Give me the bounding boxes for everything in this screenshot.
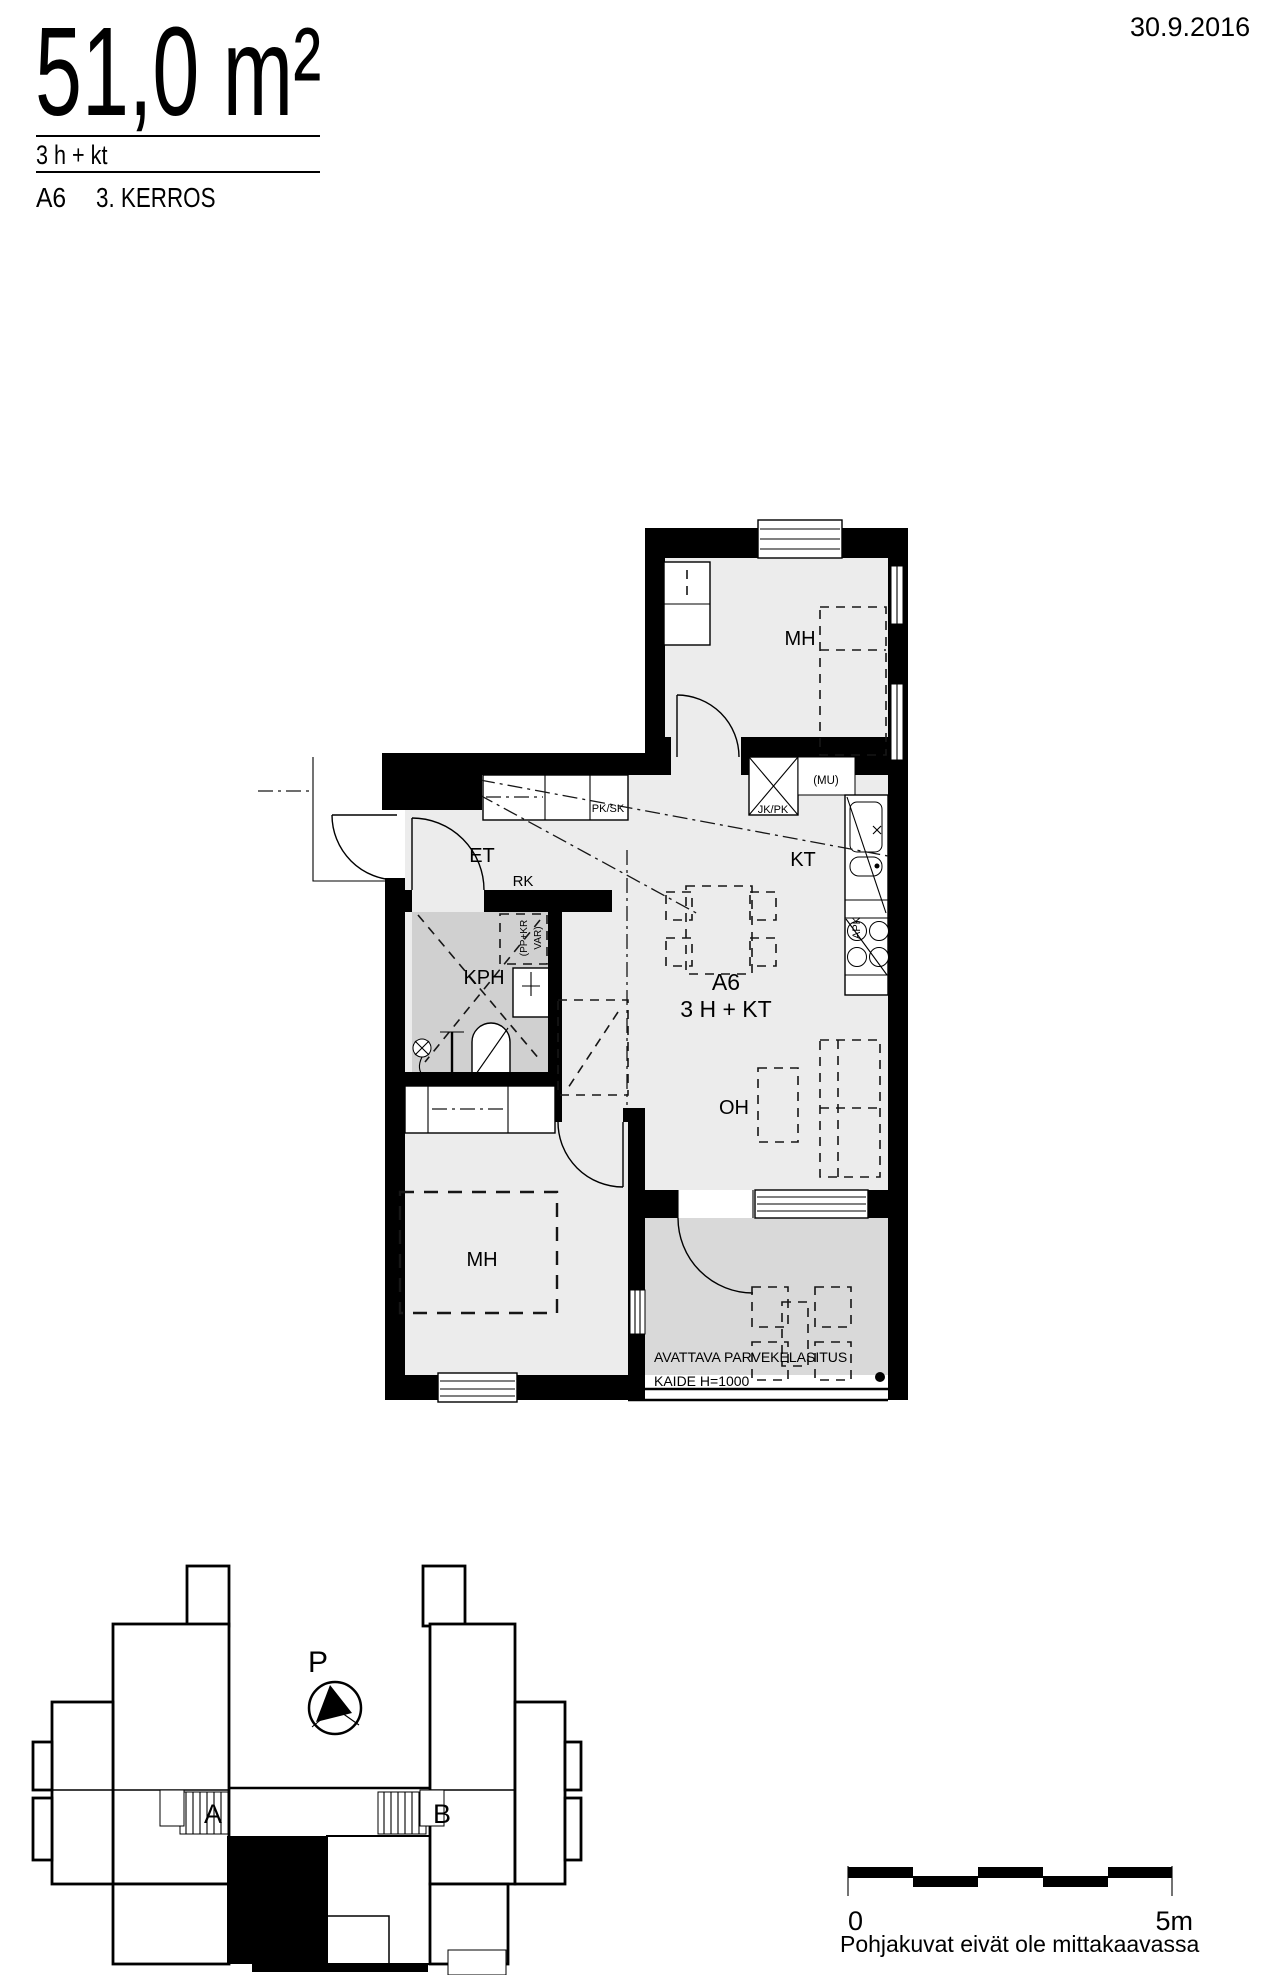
wardrobe-bedroom-bottom <box>405 1086 555 1133</box>
north-label: P <box>308 1646 328 1679</box>
toilet-icon <box>472 1023 510 1078</box>
window-bedroom-bottom <box>438 1373 517 1402</box>
room-label-bedroom-bottom: MH <box>466 1249 497 1271</box>
label-rk-closet: RK <box>513 873 534 890</box>
label-fridge-freezer: JK/PK <box>758 804 789 816</box>
balcony-note-line1: AVATTAVA PARVEKELASITUS <box>654 1349 847 1365</box>
unit-label: A6 <box>712 969 740 995</box>
label-hall-cabinet: PK/SK <box>592 803 625 815</box>
balcony-note-line2: KAIDE H=1000 <box>654 1373 750 1389</box>
room-label-kitchen: KT <box>790 849 816 871</box>
window-bedroom-top <box>758 520 842 558</box>
sink-icon <box>850 802 882 852</box>
not-to-scale-note: Pohjakuvat eivät ole mittakaavassa <box>840 1931 1197 1958</box>
stairwell-b-label: B <box>433 1799 451 1829</box>
floor-plan: MH ET KT RK KPH OH MH A6 3 H + KT PK/SK … <box>258 520 908 1402</box>
room-label-entry: ET <box>469 845 495 867</box>
label-dishwasher: APK <box>851 916 863 939</box>
room-label-bathroom: KPH <box>463 967 504 989</box>
label-washer-dryer-2: VAR) <box>533 926 544 949</box>
window-balcony <box>755 1190 868 1218</box>
highlighted-apartment-location <box>227 1836 327 1964</box>
stair-core-outline <box>327 1836 430 1964</box>
north-arrow-icon <box>309 1682 361 1734</box>
floor-plan-sheet: 51,0 m² 3 h + kt A6 3. KERROS 30.9.2016 <box>0 0 1283 1975</box>
room-label-bedroom-top: MH <box>784 628 815 650</box>
scale-bar: 0 5m <box>848 1866 1193 1936</box>
building-b <box>378 1566 581 1975</box>
label-washer-dryer-1: (PP+KR <box>519 920 530 956</box>
architectural-drawing: MH ET KT RK KPH OH MH A6 3 H + KT PK/SK … <box>0 0 1283 1975</box>
ground-hatch <box>252 1964 428 1972</box>
unit-type-label: 3 H + KT <box>680 996 771 1022</box>
stairwell-a-label: A <box>204 1799 222 1829</box>
balcony-drain <box>875 1372 885 1382</box>
label-microwave: (MU) <box>813 775 839 787</box>
site-plan: P A B <box>33 1566 581 1975</box>
room-label-living: OH <box>719 1097 749 1119</box>
wardrobe-bedroom-top <box>664 562 710 645</box>
building-a <box>33 1566 229 1964</box>
